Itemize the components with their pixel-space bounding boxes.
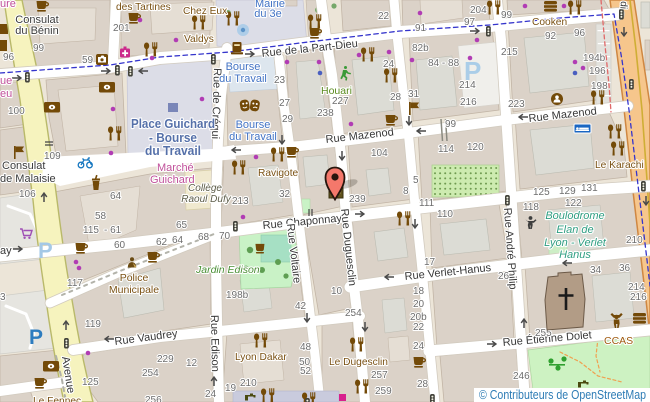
svg-text:eu: eu [0, 88, 12, 100]
svg-text:ue: ue [0, 75, 12, 87]
svg-text:24: 24 [383, 59, 395, 70]
svg-text:201: 201 [113, 23, 130, 34]
svg-text:Boulodrome: Boulodrome [545, 210, 604, 222]
svg-text:196: 196 [589, 66, 606, 77]
svg-text:3: 3 [0, 292, 6, 303]
svg-text:Elan de: Elan de [556, 224, 593, 236]
svg-text:34: 34 [590, 265, 602, 276]
svg-text:254: 254 [142, 368, 159, 379]
svg-text:Marché: Marché [157, 162, 194, 174]
svg-text:P: P [29, 326, 43, 349]
svg-text:114: 114 [438, 144, 454, 155]
svg-text:Lyon - Verlet: Lyon - Verlet [544, 237, 607, 249]
svg-text:Chez Eux: Chez Eux [183, 6, 227, 17]
svg-text:129: 129 [559, 186, 576, 197]
svg-text:19: 19 [225, 383, 237, 394]
svg-text:17: 17 [424, 257, 436, 268]
svg-text:65: 65 [176, 220, 188, 231]
svg-text:ure: ure [0, 0, 16, 10]
svg-text:118: 118 [523, 202, 539, 213]
svg-text:70: 70 [219, 231, 231, 242]
svg-text:256: 256 [145, 395, 162, 402]
svg-text:215: 215 [501, 47, 518, 58]
svg-text:117: 117 [67, 278, 83, 289]
svg-text:259: 259 [375, 386, 392, 397]
svg-text:64: 64 [110, 191, 122, 202]
svg-text:84 - 88: 84 - 88 [428, 58, 460, 69]
svg-text:de Malaisie: de Malaisie [0, 173, 56, 185]
svg-text:131: 131 [581, 183, 598, 194]
svg-text:52: 52 [300, 366, 312, 377]
svg-text:198b: 198b [226, 290, 249, 301]
svg-text:36: 36 [619, 263, 631, 274]
svg-text:100: 100 [8, 106, 25, 117]
svg-text:Jardin Edison: Jardin Edison [195, 264, 260, 276]
svg-text:du Travail: du Travail [219, 73, 267, 85]
svg-text:8: 8 [403, 186, 409, 197]
svg-text:111: 111 [419, 198, 435, 209]
svg-text:18: 18 [413, 286, 425, 297]
svg-text:du Travail: du Travail [145, 143, 201, 158]
svg-text:Police: Police [120, 272, 149, 284]
svg-text:28: 28 [390, 92, 402, 103]
svg-text:239: 239 [349, 194, 366, 205]
svg-text:Consulat: Consulat [2, 160, 45, 172]
svg-text:210: 210 [626, 235, 643, 246]
svg-text:198: 198 [591, 81, 608, 92]
svg-text:42: 42 [295, 301, 307, 312]
svg-text:24: 24 [205, 389, 217, 400]
svg-text:Municipale: Municipale [109, 284, 159, 296]
svg-text:216: 216 [460, 97, 477, 108]
svg-text:31: 31 [408, 89, 420, 100]
svg-text:194b: 194b [583, 53, 606, 64]
svg-text:82b: 82b [412, 43, 429, 54]
svg-text:Place Guichard: Place Guichard [131, 116, 215, 131]
svg-text:12: 12 [186, 358, 198, 369]
svg-text:216: 216 [630, 292, 647, 303]
svg-text:106: 106 [19, 189, 36, 200]
svg-text:96: 96 [3, 52, 15, 63]
svg-text:di: di [617, 1, 629, 10]
svg-text:Le Dugesclin: Le Dugesclin [329, 357, 388, 368]
svg-text:119: 119 [85, 319, 101, 330]
svg-text:Rue Edison: Rue Edison [208, 315, 221, 372]
svg-text:CCAS: CCAS [604, 335, 633, 347]
svg-text:92: 92 [545, 31, 557, 42]
svg-text:22: 22 [413, 322, 425, 333]
svg-text:Bourse: Bourse [236, 119, 271, 131]
svg-text:115: 115 [83, 225, 99, 236]
svg-text:96: 96 [574, 28, 586, 39]
svg-text:Lyon Dakar: Lyon Dakar [235, 352, 287, 363]
svg-text:214: 214 [459, 80, 476, 91]
svg-text:58: 58 [95, 211, 107, 222]
svg-text:99: 99 [33, 43, 45, 54]
svg-text:Hanus: Hanus [559, 249, 591, 261]
svg-text:Ravigote: Ravigote [258, 168, 299, 179]
svg-text:125: 125 [82, 377, 99, 388]
svg-text:Le Karachi: Le Karachi [595, 160, 644, 171]
svg-text:ay: ay [0, 245, 12, 257]
svg-text:229: 229 [157, 354, 174, 365]
svg-text:48: 48 [300, 342, 312, 353]
svg-text:257: 257 [371, 370, 388, 381]
svg-text:68: 68 [198, 232, 210, 243]
svg-text:120: 120 [467, 142, 484, 153]
svg-text:© Contributeurs de OpenStreetM: © Contributeurs de OpenStreetMap [479, 388, 646, 402]
svg-text:110: 110 [437, 209, 453, 220]
svg-text:254: 254 [345, 308, 362, 319]
svg-text:64: 64 [172, 235, 184, 246]
svg-text:99: 99 [501, 10, 513, 21]
svg-text:62: 62 [156, 237, 168, 248]
svg-text:97: 97 [464, 17, 476, 28]
svg-text:210: 210 [240, 378, 257, 389]
svg-text:Collège: Collège [188, 183, 222, 194]
svg-text:P: P [38, 238, 53, 263]
svg-text:du Travail: du Travail [229, 131, 277, 143]
svg-text:22: 22 [378, 11, 390, 22]
svg-text:28: 28 [417, 379, 429, 390]
svg-text:99: 99 [445, 119, 457, 130]
svg-text:59: 59 [82, 55, 94, 66]
svg-text:Raoul Dufy: Raoul Dufy [181, 194, 231, 205]
svg-text:des Tartines: des Tartines [116, 2, 171, 13]
svg-text:238: 238 [317, 108, 334, 119]
svg-text:60: 60 [114, 240, 126, 251]
svg-text:125: 125 [533, 187, 550, 198]
svg-text:122: 122 [565, 198, 582, 209]
svg-text:du 3e: du 3e [254, 8, 282, 20]
svg-text:32: 32 [279, 189, 291, 200]
svg-text:Valdys: Valdys [184, 34, 214, 45]
svg-text:246: 246 [513, 371, 530, 382]
svg-text:10: 10 [331, 286, 343, 297]
svg-text:Bourse: Bourse [226, 61, 261, 73]
svg-text:227: 227 [332, 96, 349, 107]
svg-text:Cooken: Cooken [532, 17, 567, 28]
svg-text:204: 204 [470, 5, 487, 16]
svg-text:91: 91 [415, 23, 427, 34]
svg-text:213: 213 [232, 196, 249, 207]
svg-text:223: 223 [508, 99, 525, 110]
svg-text:104: 104 [371, 148, 388, 159]
svg-text:26: 26 [498, 271, 510, 282]
svg-text:5: 5 [413, 175, 419, 186]
svg-text:24: 24 [413, 341, 425, 352]
svg-text:20: 20 [413, 299, 425, 310]
svg-text:109: 109 [44, 151, 61, 162]
svg-text:du Bénin: du Bénin [15, 25, 58, 37]
svg-text:Le Fennec: Le Fennec [33, 396, 81, 402]
svg-text:23: 23 [274, 75, 286, 86]
svg-text:27: 27 [279, 98, 291, 109]
svg-text:- 61: - 61 [104, 225, 122, 236]
svg-text:29: 29 [282, 114, 294, 125]
